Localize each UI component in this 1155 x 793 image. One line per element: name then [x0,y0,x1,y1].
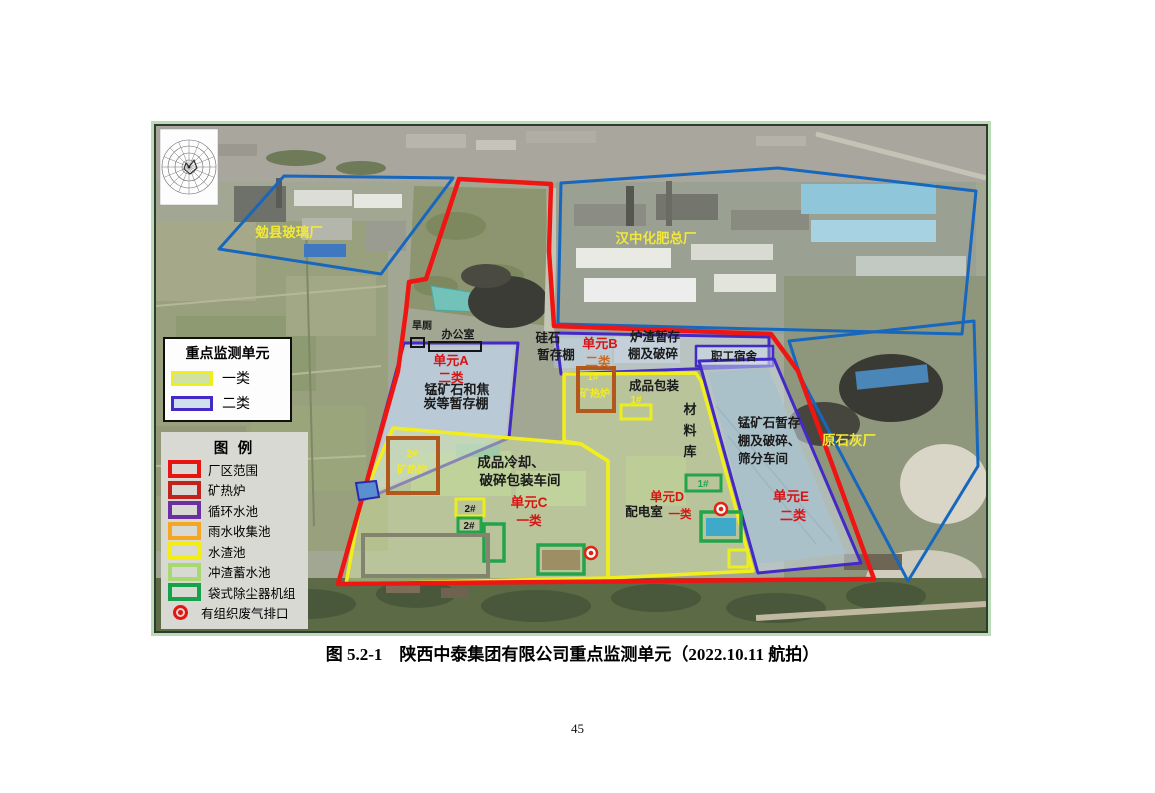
label-mn-shed-2: 棚及破碎、 [738,433,801,448]
furnace-swatch-icon [168,481,201,499]
pool-interior [706,518,736,536]
label-packing: 成品包装 [629,378,680,393]
slag-reservoir-swatch-icon [168,563,201,581]
bagfilter-swatch-icon [168,583,201,601]
legend-row-class2: 二类 [171,393,284,413]
label-glass-factory: 勉县玻璃厂 [254,224,323,240]
label-material-1: 材 [683,402,696,417]
monitor-units-legend: 重点监测单元 一类 二类 [163,337,292,422]
label-silica-2: 暂存棚 [537,347,575,362]
legend-label: 矿热炉 [208,480,246,499]
slag-pool-swatch-icon [168,542,201,560]
label-furnace1-no: 1# [587,372,599,383]
label-unit-d: 单元D [650,489,684,504]
label-lime-factory: 原石灰厂 [822,432,876,448]
label-unit-c-class: 一类 [516,513,542,528]
label-bag1-no: 1# [697,479,709,490]
label-unit-b: 单元B [582,336,617,351]
legend-row-slag-reservoir: 冲渣蓄水池 [168,562,301,583]
legend-label: 雨水收集池 [208,521,271,540]
legend-row-slag-pool: 水渣池 [168,541,301,562]
legend-row-bagfilter: 袋式除尘器机组 [168,582,301,603]
legend-label: 水渣池 [208,542,246,561]
label-shed-a-1: 锰矿石和焦 [424,382,489,397]
wind-rose-center [188,166,190,168]
map-legend-title: 图 例 [168,437,301,458]
legend-label: 袋式除尘器机组 [208,583,296,602]
legend-row-class1: 一类 [171,368,284,388]
exhaust-outlet-1 [585,547,597,559]
label-silica-1: 硅石 [535,330,560,345]
legend-row-circulating-pool: 循环水池 [168,500,301,521]
figure-caption: 图 5.2-1 陕西中泰集团有限公司重点监测单元（2022.10.11 航拍） [0,640,1145,665]
label-slag-2: 棚及破碎 [628,346,679,361]
plant-boundary-swatch-icon [168,460,201,478]
label-mn-shed-1: 锰矿石暂存 [738,415,801,430]
class1-label: 一类 [222,368,250,388]
label-fertilizer-factory: 汉中化肥总厂 [616,230,697,246]
label-bag2-no: 2# [463,521,475,532]
exhaust-outlet-2 [715,503,727,515]
legend-row-rainwater-pool: 雨水收集池 [168,521,301,542]
legend-label: 循环水池 [208,501,258,520]
label-slag-pool2-no: 2# [464,504,476,515]
label-dormitory: 职工宿舍 [711,349,757,363]
page-number: 45 [0,721,1155,737]
figure-frame: 勉县玻璃厂 汉中化肥总厂 原石灰厂 旱厕 办公室 单元A 二类 锰矿石和焦 炭等… [151,121,991,636]
exhaust-dot-icon [589,551,594,556]
label-shed-a-2: 炭等暂存棚 [423,396,488,411]
label-furnace2-no: 2# [406,449,418,460]
label-office: 办公室 [442,327,475,341]
circulating-pool-swatch-icon [168,501,201,519]
exhaust-dot-icon [719,507,724,512]
label-dry-toilet: 旱厕 [412,320,432,332]
map-legend: 图 例 厂区范围 矿热炉 循环水池 雨水收集池 [161,432,308,629]
class2-label: 二类 [222,393,250,413]
bagfilter-wide-interior [542,550,580,570]
monitor-legend-title: 重点监测单元 [171,343,284,363]
label-slag-1: 炉渣暂存 [630,329,681,344]
label-cooling-2: 破碎包装车间 [480,472,561,488]
label-furnace2-name: 矿热炉 [397,463,427,476]
label-furnace1-name: 矿热炉 [580,387,610,400]
wind-rose [160,129,218,205]
label-slag-pool1-no: 1# [630,395,642,406]
circulating-pool [356,481,379,500]
exhaust-outlet-dot-icon [178,610,183,615]
legend-row-furnace: 矿热炉 [168,480,301,501]
legend-label: 冲渣蓄水池 [208,562,271,581]
label-unit-e: 单元E [773,488,809,504]
label-mn-shed-3: 筛分车间 [738,451,788,466]
legend-row-plant-boundary: 厂区范围 [168,459,301,480]
label-cooling-1: 成品冷却、 [477,454,545,470]
label-power-room: 配电室 [625,504,663,519]
class1-swatch-icon [171,371,213,386]
aerial-photo: 勉县玻璃厂 汉中化肥总厂 原石灰厂 旱厕 办公室 单元A 二类 锰矿石和焦 炭等… [154,124,988,633]
label-unit-a: 单元A [433,353,469,368]
label-unit-d-class: 一类 [669,507,692,521]
label-unit-e-class: 二类 [780,508,807,523]
label-material-3: 库 [683,444,696,459]
label-unit-b-class: 二类 [585,354,611,369]
document-page: 勉县玻璃厂 汉中化肥总厂 原石灰厂 旱厕 办公室 单元A 二类 锰矿石和焦 炭等… [0,0,1155,793]
label-unit-c: 单元C [511,494,548,510]
rainwater-pool-swatch-icon [168,522,201,540]
legend-row-exhaust-outlet: 有组织废气排口 [168,603,301,624]
legend-label: 有组织废气排口 [201,603,289,622]
legend-label: 厂区范围 [208,460,258,479]
class2-swatch-icon [171,396,213,411]
label-material-2: 料 [683,423,696,438]
exhaust-outlet-swatch-icon [173,605,188,620]
